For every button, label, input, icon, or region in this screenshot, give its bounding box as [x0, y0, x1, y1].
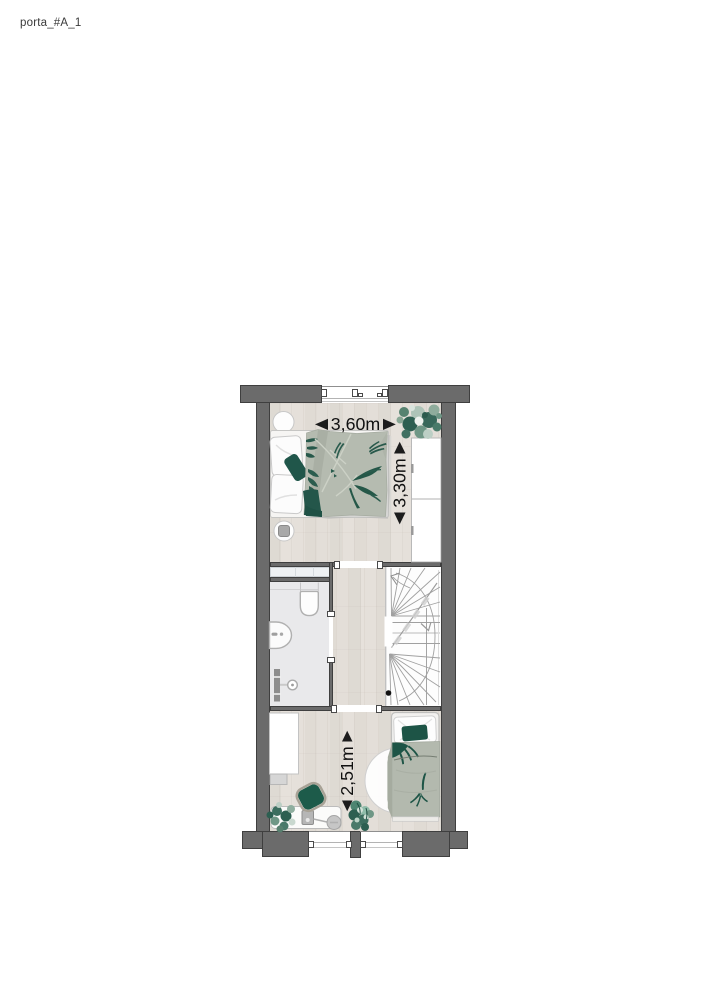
- svg-text:3,60m: 3,60m: [331, 414, 380, 434]
- svg-text:2,51m: 2,51m: [337, 746, 357, 795]
- svg-text:3,30m: 3,30m: [390, 458, 410, 507]
